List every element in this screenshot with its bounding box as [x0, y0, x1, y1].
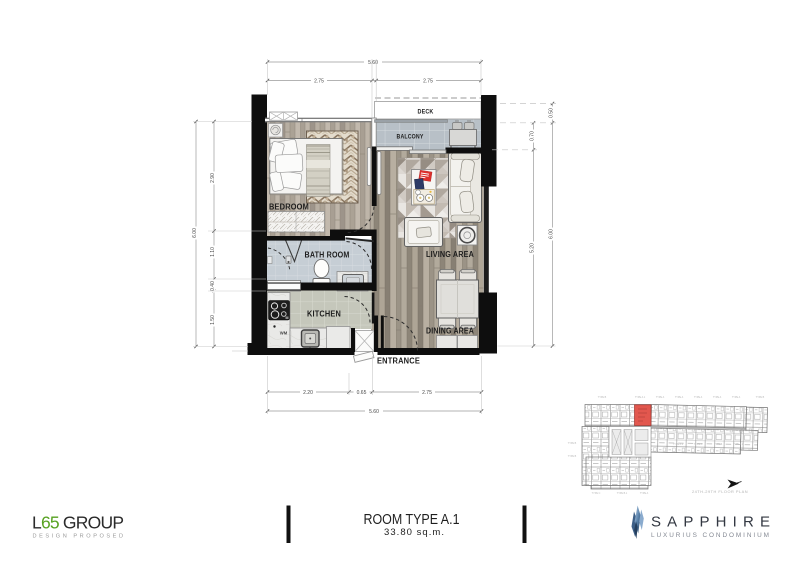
svg-text:TYPE A: TYPE A [732, 396, 741, 399]
svg-text:TYPE A.2: TYPE A.2 [733, 443, 744, 446]
svg-text:TYPE A.2: TYPE A.2 [673, 443, 684, 446]
svg-text:ROOM TYPE A.1: ROOM TYPE A.1 [364, 511, 460, 528]
svg-text:WM: WM [280, 330, 288, 335]
svg-text:0.50: 0.50 [549, 108, 555, 118]
svg-text:TYPE A.1: TYPE A.1 [635, 396, 646, 399]
svg-text:TYPE A: TYPE A [714, 443, 723, 446]
svg-text:24TH-29TH FLOOR PLAN: 24TH-29TH FLOOR PLAN [692, 489, 748, 494]
svg-text:TYPE C: TYPE C [592, 492, 601, 495]
svg-text:BALCONY: BALCONY [397, 134, 424, 141]
svg-text:0.40: 0.40 [210, 281, 216, 291]
svg-text:TYPE B.1: TYPE B.1 [617, 492, 628, 495]
svg-text:0.70: 0.70 [530, 131, 536, 141]
svg-text:2.90: 2.90 [210, 173, 216, 183]
svg-text:TYPE A: TYPE A [675, 396, 684, 399]
svg-text:TYPE B: TYPE B [568, 455, 577, 458]
svg-text:TYPE A: TYPE A [694, 396, 703, 399]
svg-text:DINING AREA: DINING AREA [426, 326, 474, 335]
svg-text:L65 GROUP: L65 GROUP [32, 513, 124, 533]
svg-text:6.00: 6.00 [192, 228, 198, 238]
svg-text:0.65: 0.65 [357, 390, 367, 396]
svg-text:BATH ROOM: BATH ROOM [305, 250, 350, 259]
svg-text:TYPE A: TYPE A [694, 443, 703, 446]
svg-text:1.50: 1.50 [210, 315, 216, 325]
svg-text:2.75: 2.75 [423, 79, 433, 85]
svg-text:ENTRANCE: ENTRANCE [377, 356, 420, 365]
svg-text:DECK: DECK [418, 109, 434, 116]
svg-text:2.75: 2.75 [422, 390, 432, 396]
svg-text:TYPE A: TYPE A [640, 492, 649, 495]
svg-text:LUXURIUS CONDOMINIUM: LUXURIUS CONDOMINIUM [651, 532, 769, 539]
svg-text:5.20: 5.20 [530, 243, 536, 253]
svg-text:TYPE B: TYPE B [598, 396, 607, 399]
svg-text:TYPE A: TYPE A [713, 396, 722, 399]
svg-text:BEDROOM: BEDROOM [269, 203, 309, 212]
svg-text:LIVING AREA: LIVING AREA [426, 250, 474, 259]
svg-text:33.80 sq.m.: 33.80 sq.m. [384, 527, 444, 538]
svg-text:5.60: 5.60 [368, 60, 378, 66]
svg-text:TYPE B: TYPE B [756, 396, 765, 399]
svg-text:TYPE A: TYPE A [656, 396, 665, 399]
svg-text:2.20: 2.20 [303, 390, 313, 396]
svg-text:KITCHEN: KITCHEN [307, 309, 341, 318]
svg-text:6.00: 6.00 [549, 229, 555, 239]
svg-text:2.75: 2.75 [314, 79, 324, 85]
svg-text:5.60: 5.60 [369, 409, 379, 415]
svg-text:1.10: 1.10 [210, 247, 216, 257]
svg-text:TYPE B: TYPE B [568, 442, 577, 445]
